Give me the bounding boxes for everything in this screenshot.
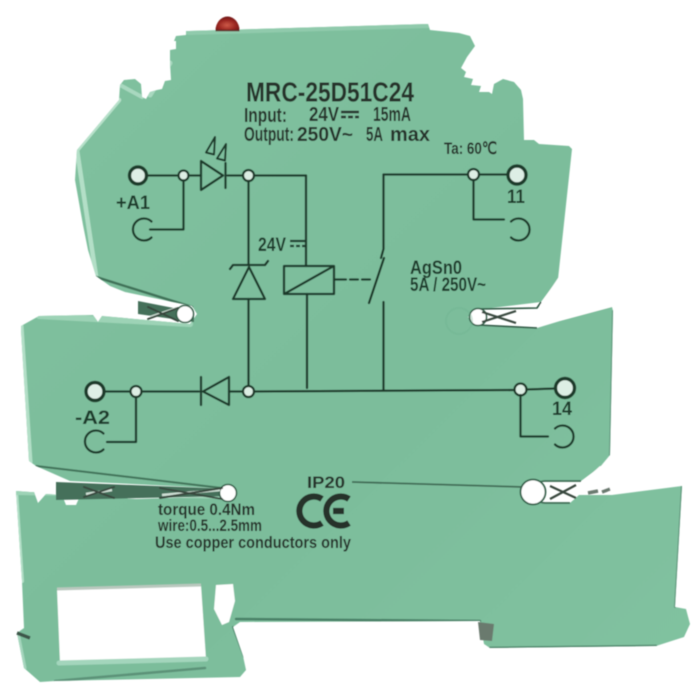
svg-text:14: 14 [552, 399, 572, 420]
svg-text:11: 11 [507, 187, 525, 208]
svg-text:max: max [390, 124, 430, 146]
svg-text:250V~: 250V~ [297, 124, 353, 146]
svg-text:MRC-25D51C24: MRC-25D51C24 [246, 77, 414, 108]
svg-text:5A / 250V~: 5A / 250V~ [410, 275, 486, 296]
svg-text:-A2: -A2 [75, 408, 110, 429]
svg-text:Output:: Output: [244, 124, 294, 146]
svg-text:Ta: 60℃: Ta: 60℃ [444, 139, 497, 158]
svg-text:Use copper conductors only: Use copper conductors only [155, 533, 351, 552]
svg-text:15mA: 15mA [373, 104, 411, 126]
svg-text:5A: 5A [366, 124, 383, 146]
svg-text:IP20: IP20 [307, 473, 345, 492]
svg-text:+A1: +A1 [116, 193, 150, 214]
svg-text:24V: 24V [258, 235, 286, 256]
svg-text:24V: 24V [309, 104, 340, 126]
